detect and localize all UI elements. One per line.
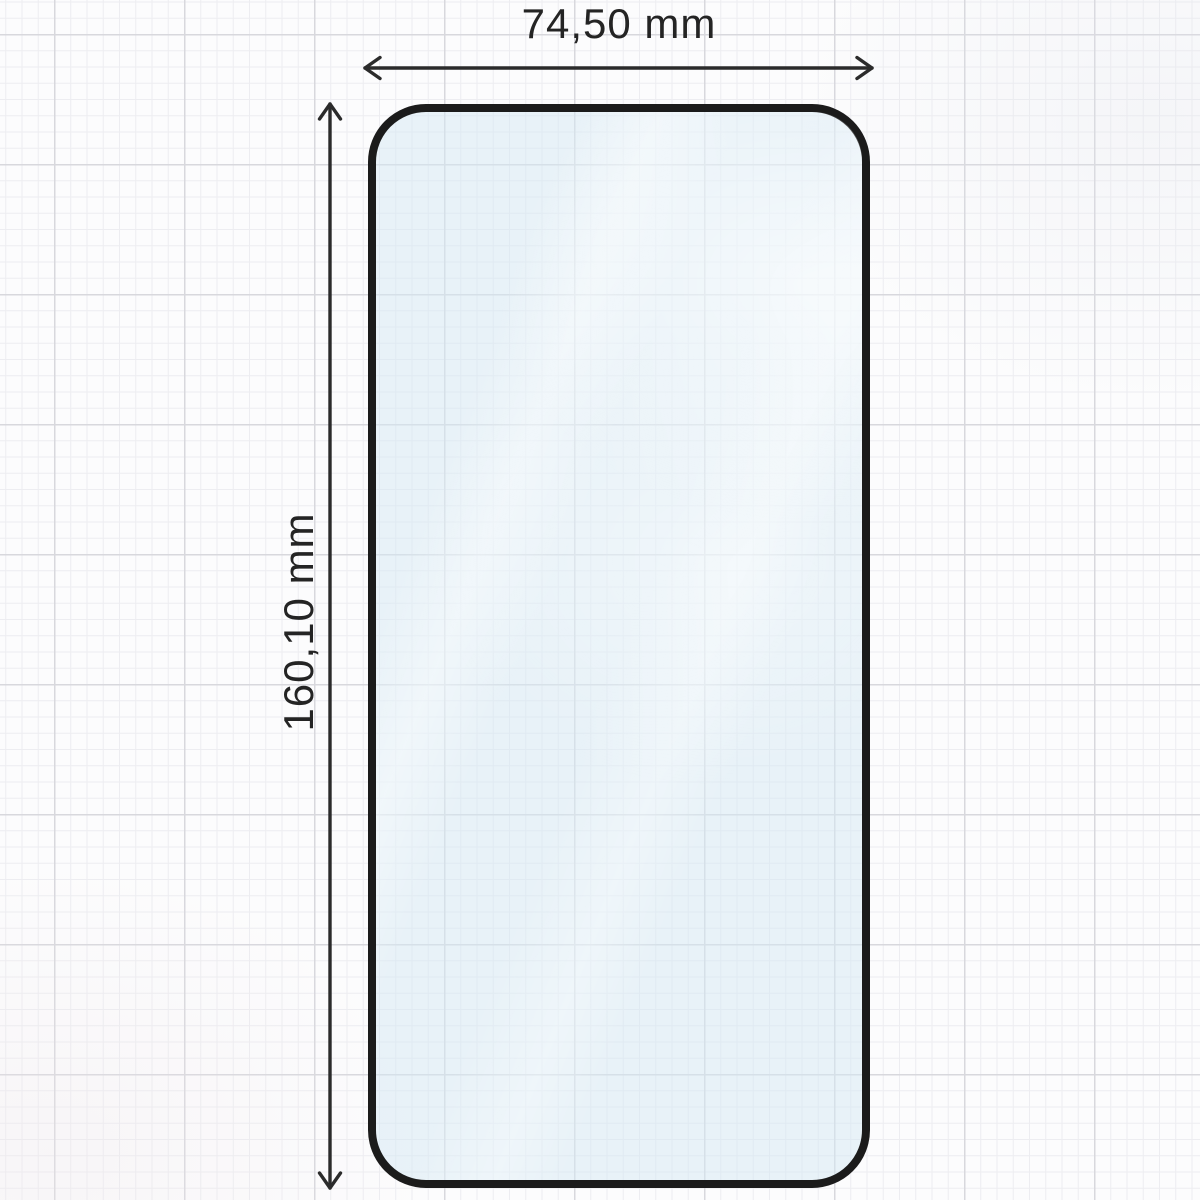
screen-protector-glass — [368, 104, 870, 1188]
height-dimension-arrow-icon — [312, 96, 348, 1196]
diagram-canvas: 74,50 mm 160,10 mm — [0, 0, 1200, 1200]
width-dimension-label: 74,50 mm — [522, 0, 717, 48]
width-dimension-arrow-icon — [358, 50, 880, 86]
glass-reflection-highlight — [376, 112, 862, 1180]
